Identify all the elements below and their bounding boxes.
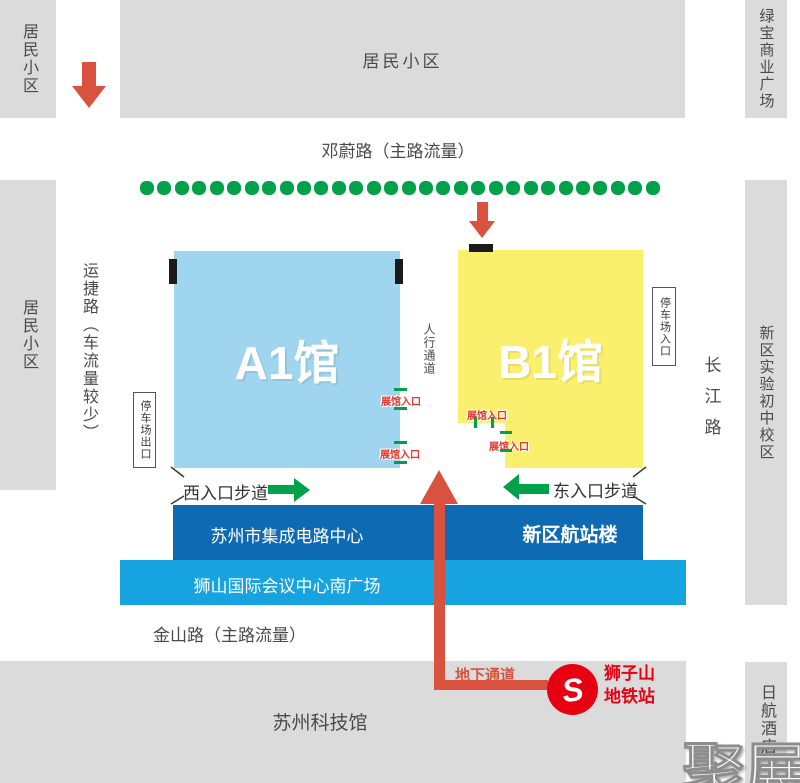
terminal-label: 新区航站楼 bbox=[470, 520, 670, 547]
watermark: 聚展 bbox=[682, 722, 800, 783]
metro-station-line2: 地铁站 bbox=[604, 686, 655, 709]
venue-map: 居民小区 居民小区 绿宝商业广场 居民小区 新区实验初中校区 苏州科技馆 日航酒… bbox=[0, 0, 800, 783]
metro-station-line1: 狮子山 bbox=[604, 663, 655, 686]
venue-bar-top: 苏州市集成电路中心 新区航站楼 bbox=[173, 505, 643, 560]
metro-logo-letter: S bbox=[560, 672, 586, 707]
underground-passage-label: 地下通道 bbox=[455, 664, 515, 685]
venue-bar-plaza: 狮山国际会议中心南广场 bbox=[120, 560, 686, 605]
ic-center-label: 苏州市集成电路中心 bbox=[187, 522, 387, 547]
route-arrow-up-icon bbox=[420, 470, 458, 504]
metro-logo: S bbox=[547, 664, 598, 715]
metro-station-label: 狮子山 地铁站 bbox=[604, 663, 655, 709]
plaza-label: 狮山国际会议中心南广场 bbox=[187, 572, 387, 597]
connector-lines bbox=[0, 0, 800, 783]
route-vertical-segment bbox=[434, 502, 445, 690]
